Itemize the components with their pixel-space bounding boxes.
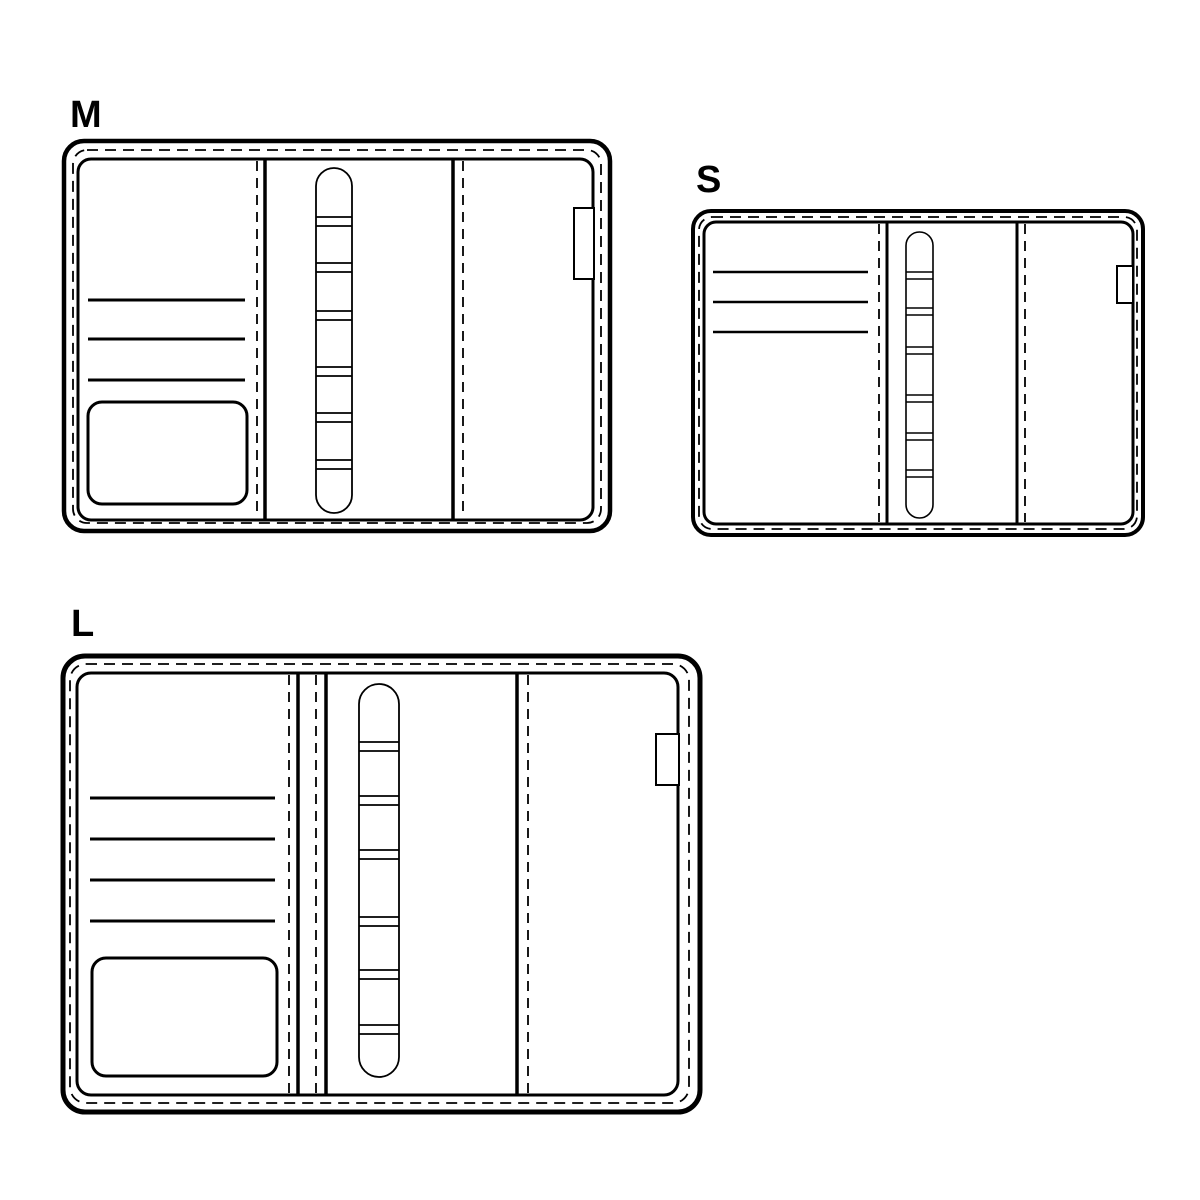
size-label-s: S [696,161,722,199]
stitch-line [699,217,1137,529]
stitch-line [70,664,689,1103]
pocket-outline [88,402,247,504]
outer-cover-outline [64,141,610,531]
pen-loop [1117,266,1133,303]
inner-lining-outline [77,673,678,1095]
ring-lines [906,272,933,477]
ring-binder-outline [316,168,352,513]
pen-loop [574,208,594,279]
size-label-m: M [70,96,102,134]
outer-cover-outline [63,656,700,1112]
pattern-sheet: M S [0,0,1200,1200]
ring-binder-outline [359,684,399,1077]
cover-drawing-l [58,650,705,1117]
cover-drawing-m [60,138,615,535]
pen-loop [656,734,679,785]
ring-binder-outline [906,232,933,518]
ring-lines [359,742,399,1034]
stitch-line [73,150,601,523]
pocket-outline [92,958,277,1076]
inner-lining-outline [704,222,1133,524]
outer-cover-outline [693,211,1143,535]
cover-drawing-s [688,206,1148,540]
ring-lines [316,217,352,469]
size-label-l: L [71,605,95,643]
